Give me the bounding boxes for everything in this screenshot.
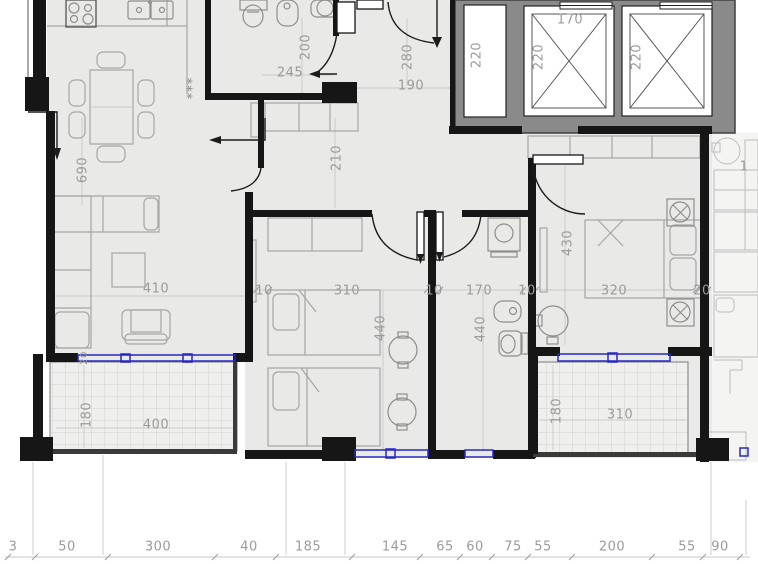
dim-b-200: 200 xyxy=(599,541,625,554)
elevator-block xyxy=(455,0,735,133)
dim-10-c: 10 xyxy=(518,285,536,298)
dim-b-50: 50 xyxy=(58,541,76,554)
stars-symbol: *** xyxy=(186,77,201,100)
dim-220-car2: 220 xyxy=(631,44,644,70)
dim-b-55-a: 55 xyxy=(534,541,552,554)
dim-320: 320 xyxy=(601,285,627,298)
dim-690: 690 xyxy=(77,157,90,183)
dim-10-b: 10 xyxy=(425,285,443,298)
dim-200: 200 xyxy=(300,34,313,60)
floor-plan-drawing xyxy=(0,0,758,564)
dim-1-partial: 1 xyxy=(740,161,749,174)
dim-400: 400 xyxy=(143,419,169,432)
dim-310-bedroom: 310 xyxy=(334,285,360,298)
dim-b-65: 65 xyxy=(436,541,454,554)
dim-b-300: 300 xyxy=(145,541,171,554)
entry-jamb xyxy=(357,0,383,9)
dim-170-elevator: 170 xyxy=(557,14,583,27)
master-door-leaf xyxy=(533,155,583,164)
dim-440-bath: 440 xyxy=(475,316,488,342)
dim-310-balcony: 310 xyxy=(607,409,633,422)
dim-b-185: 185 xyxy=(295,541,321,554)
dim-170-bath: 170 xyxy=(466,285,492,298)
dim-190: 190 xyxy=(398,80,424,93)
dim-20-window: 20 xyxy=(80,351,90,365)
bathroom-door-leaf xyxy=(337,2,355,33)
dim-410: 410 xyxy=(143,283,169,296)
dim-440-bedroom: 440 xyxy=(375,315,388,341)
dim-b-55-b: 55 xyxy=(678,541,696,554)
dim-180-right: 180 xyxy=(551,398,564,424)
dim-b-60: 60 xyxy=(466,541,484,554)
dim-430: 430 xyxy=(562,230,575,256)
dim-b-75: 75 xyxy=(504,541,522,554)
dim-280: 280 xyxy=(402,44,415,70)
dim-b-40: 40 xyxy=(240,541,258,554)
dim-20: 20 xyxy=(693,285,711,298)
floor-plan: 690 200 210 280 220 220 220 430 440 440 … xyxy=(0,0,758,564)
dim-220-car1: 220 xyxy=(533,44,546,70)
dim-210: 210 xyxy=(331,145,344,171)
dim-10-a: 10 xyxy=(255,285,273,298)
bedroom2-door-leaf xyxy=(417,212,424,260)
dim-b-3: 3 xyxy=(9,541,18,554)
dim-b-145: 145 xyxy=(382,541,408,554)
dim-245: 245 xyxy=(277,67,303,80)
dim-220-shaft: 220 xyxy=(471,42,484,68)
dim-180-left: 180 xyxy=(81,402,94,428)
dim-b-90: 90 xyxy=(711,541,729,554)
